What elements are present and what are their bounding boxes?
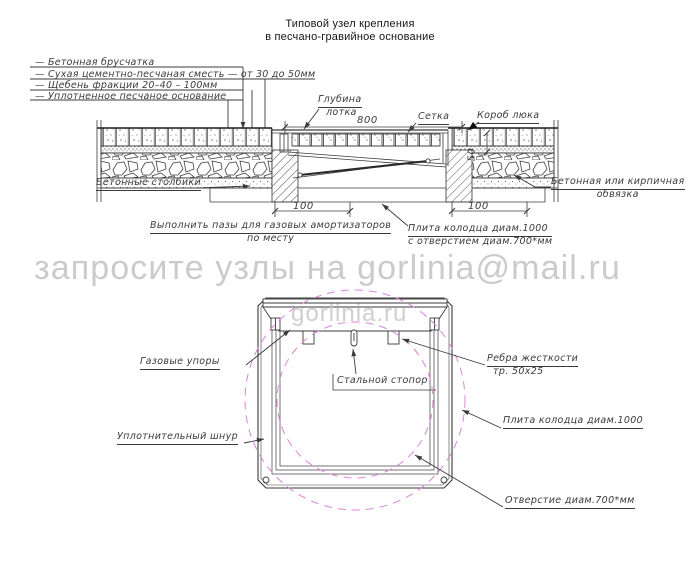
legend-item-sand: — Уплотненное песчаное основание <box>35 91 226 102</box>
watermark-site: gorlinia.ru <box>291 300 407 328</box>
label-ribs: Ребра жесткости тр. 50х25 <box>487 354 578 378</box>
label-plate-section-line2: с отверстием диам.700*мм <box>408 237 552 248</box>
label-mesh: Сетка <box>418 112 449 125</box>
label-concrete-posts: Бетонные столбики <box>96 178 201 191</box>
dim-50: 50 <box>467 148 479 162</box>
plan-leaders <box>244 330 503 507</box>
label-grooves-line1: Выполнить пазы для газовых амортизаторов <box>150 221 391 234</box>
label-binding-line1: Бетонная или кирпичная <box>551 177 685 190</box>
label-ribs-line2: тр. 50х25 <box>487 367 578 378</box>
label-seal-cord: Уплотнительный шнур <box>117 432 238 445</box>
label-hatch-box: Короб люка <box>477 111 539 124</box>
drawing-canvas: Типовой узел крепления в песчано-гравийн… <box>0 0 700 561</box>
drawing-title-line2: в песчано-гравийное основание <box>0 31 700 44</box>
label-binding-line2: обвязка <box>551 190 685 201</box>
legend-item-paving: — Бетонная брусчатка <box>35 57 154 68</box>
label-plate-plan: Плита колодца диам.1000 <box>503 416 643 429</box>
label-gas-struts: Газовые упоры <box>140 357 220 370</box>
label-plate-section-line1: Плита колодца диам.1000 <box>408 224 552 237</box>
watermark-email: запросите узлы на gorlinia@mail.ru <box>34 249 621 288</box>
label-binding: Бетонная или кирпичная обвязка <box>551 177 685 201</box>
label-ribs-line1: Ребра жесткости <box>487 354 578 367</box>
dim-100-right: 100 <box>468 201 489 213</box>
label-tray-depth-line2: лотка <box>318 108 362 119</box>
label-grooves: Выполнить пазы для газовых амортизаторов… <box>150 221 391 245</box>
drawing-title-line1: Типовой узел крепления <box>0 18 700 31</box>
dim-100-left: 100 <box>293 201 314 213</box>
drawing-title: Типовой узел крепления в песчано-гравийн… <box>0 18 700 44</box>
label-plate-section: Плита колодца диам.1000 с отверстием диа… <box>408 224 552 248</box>
label-tray-depth-line1: Глубина <box>318 95 362 108</box>
label-steel-stopper: Стальной стопор <box>337 376 428 387</box>
label-hole: Отверстие диам.700*мм <box>505 496 635 509</box>
dim-800: 800 <box>357 115 378 127</box>
label-grooves-line2: по месту <box>150 234 391 245</box>
legend-item-gravel: — Щебень фракции 20–40 – 100мм <box>35 80 218 91</box>
label-tray-depth: Глубина лотка <box>318 95 362 119</box>
legend-item-mix: — Сухая цементно-песчаная сместь — от 30… <box>35 69 315 80</box>
